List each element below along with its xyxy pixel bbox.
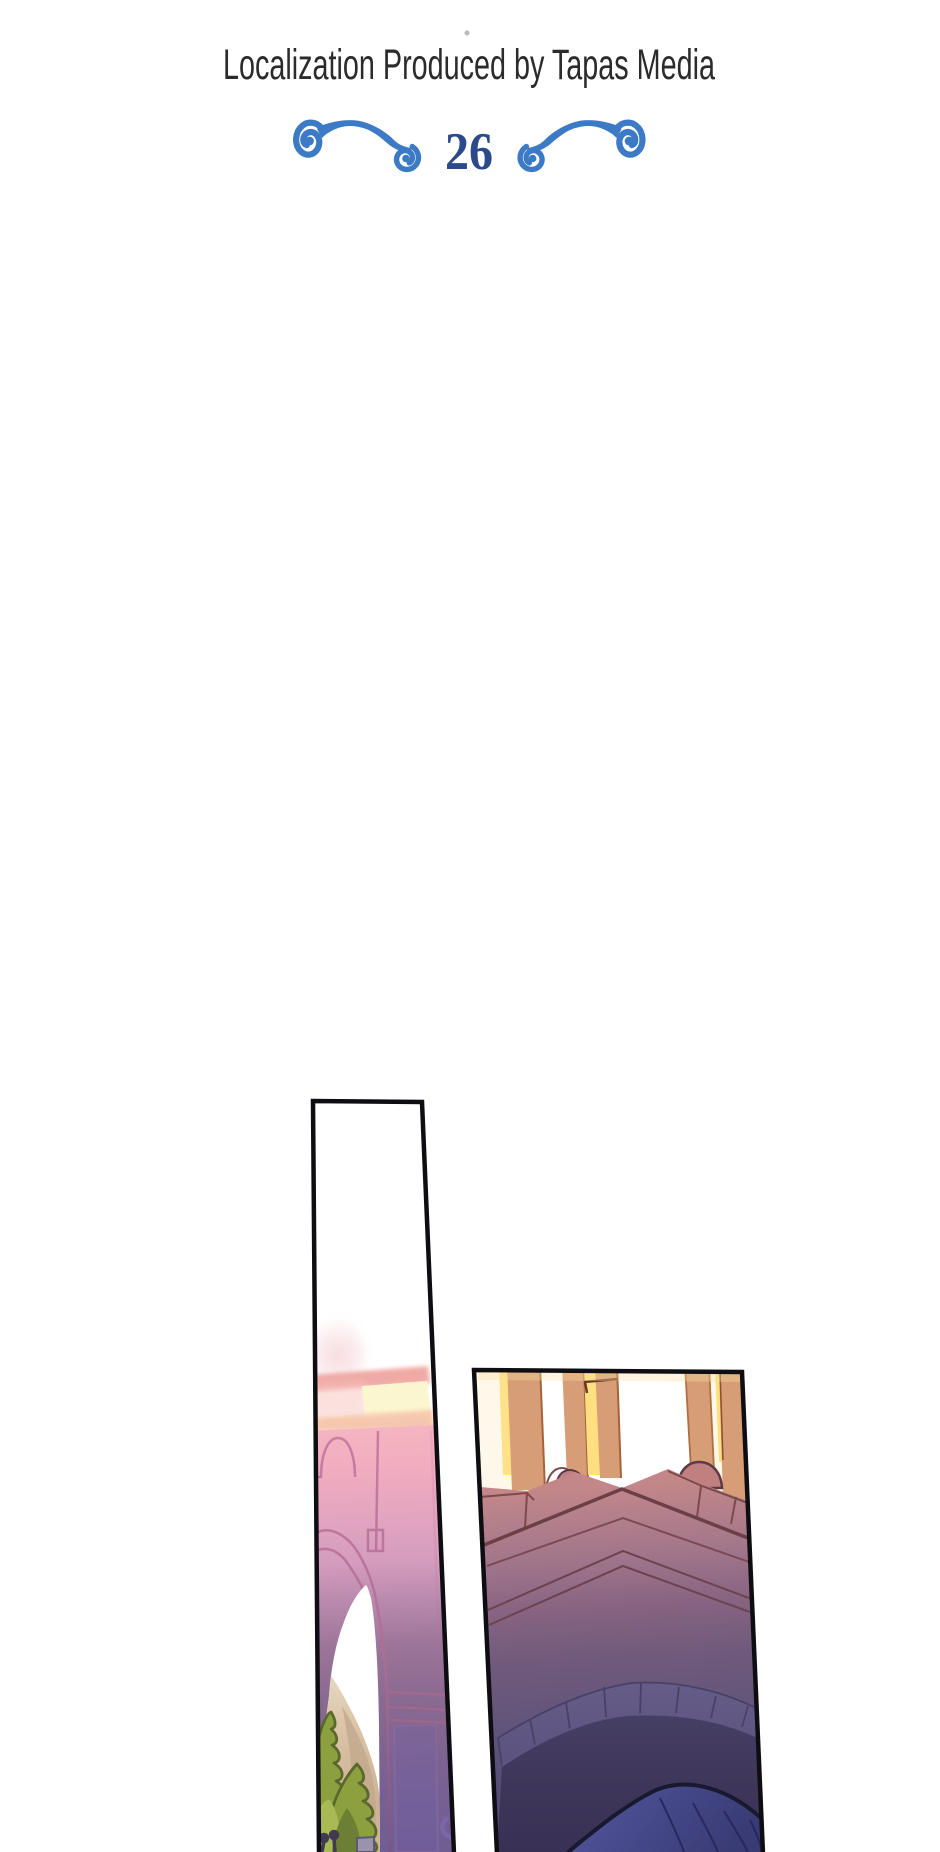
svg-text:Localization Produced by Tapas: Localization Produced by Tapas Media <box>223 41 715 89</box>
svg-text:26: 26 <box>445 123 493 181</box>
